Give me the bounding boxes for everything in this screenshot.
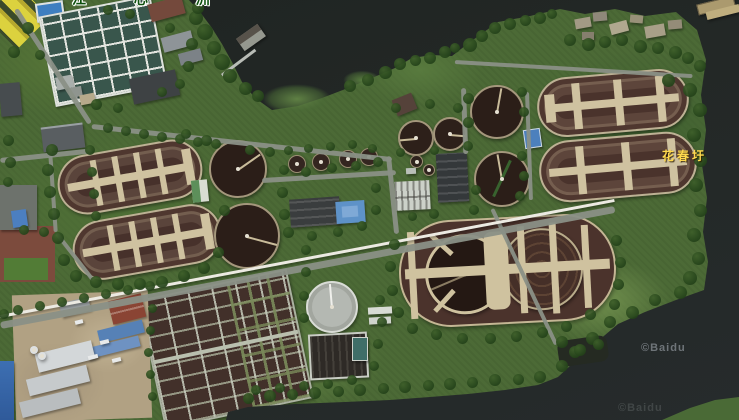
tree-canopy <box>265 147 275 157</box>
tree-canopy <box>634 40 647 53</box>
tree-canopy <box>375 295 385 305</box>
tree-canopy <box>373 339 383 349</box>
tree-canopy <box>626 306 639 319</box>
tree-canopy <box>424 52 436 64</box>
tree-canopy <box>39 227 49 237</box>
tree-canopy <box>333 227 343 237</box>
tree-canopy <box>123 285 133 295</box>
satellite-map-canvas[interactable]: 江 心 洲 花春圩 ©Baidu ©Baidu <box>0 0 739 420</box>
tree-canopy <box>379 66 392 79</box>
tree-canopy <box>214 54 230 70</box>
tree-canopy <box>275 383 285 393</box>
tree-canopy <box>616 34 628 46</box>
tree-canopy <box>251 385 261 395</box>
tree-canopy <box>323 379 333 389</box>
tree-canopy <box>511 331 522 342</box>
tree-canopy <box>239 82 252 95</box>
tree-canopy <box>287 389 298 400</box>
tree-canopy <box>183 61 194 72</box>
tree-canopy <box>429 209 439 219</box>
tree-canopy <box>5 157 16 168</box>
tree-canopy <box>125 9 135 19</box>
tree-canopy <box>85 145 95 155</box>
tree-canopy <box>35 301 45 311</box>
tree-canopy <box>35 50 45 60</box>
tree-canopy <box>599 36 611 48</box>
tree-canopy <box>517 151 527 161</box>
tree-canopy <box>371 183 381 193</box>
tree-canopy <box>471 185 481 195</box>
tree-canopy <box>8 46 20 58</box>
tree-canopy <box>351 161 361 171</box>
tree-canopy <box>519 171 529 181</box>
tree-canopy <box>299 313 309 323</box>
island-place-label: 江 心 洲 <box>72 0 232 9</box>
tree-canopy <box>556 360 568 372</box>
tree-canopy <box>609 299 620 310</box>
tree-canopy <box>371 205 381 215</box>
tree-canopy <box>504 18 516 30</box>
tree-canopy <box>393 307 404 318</box>
tree-canopy <box>201 135 212 146</box>
tree-canopy <box>301 245 311 255</box>
tree-canopy <box>354 384 366 396</box>
tree-canopy <box>304 144 313 153</box>
tree-canopy <box>207 41 221 55</box>
tree-canopy <box>534 371 546 383</box>
tree-canopy <box>344 80 356 92</box>
tree-canopy <box>211 139 221 149</box>
tree-canopy <box>407 323 418 334</box>
tree-canopy <box>3 177 13 187</box>
tree-canopy <box>362 74 374 86</box>
tree-canopy <box>373 157 383 167</box>
tree-canopy <box>694 204 707 217</box>
tree-canopy <box>485 333 496 344</box>
tree-canopy <box>682 52 694 64</box>
tree-canopy <box>662 74 675 87</box>
tree-canopy <box>144 348 153 357</box>
tree-canopy <box>197 24 213 40</box>
tree-canopy <box>410 55 421 66</box>
tree-canopy <box>58 254 70 266</box>
tree-canopy <box>463 141 473 151</box>
tree-canopy <box>44 186 56 198</box>
tree-canopy <box>145 281 155 291</box>
tree-canopy <box>46 144 58 156</box>
tree-canopy <box>0 309 9 319</box>
tree-canopy <box>89 189 99 199</box>
tree-canopy <box>556 336 568 348</box>
tree-canopy <box>277 187 288 198</box>
tree-canopy <box>301 167 311 177</box>
tree-canopy <box>547 9 557 19</box>
tree-canopy <box>264 390 276 402</box>
tree-canopy <box>146 326 155 335</box>
tree-canopy <box>252 90 264 102</box>
tree-canopy <box>148 392 157 401</box>
tree-canopy <box>689 178 703 192</box>
tree-canopy <box>19 225 29 235</box>
tree-canopy <box>243 393 254 404</box>
tree-canopy <box>87 167 97 177</box>
tree-canopy <box>394 58 406 70</box>
tree-canopy <box>489 22 501 34</box>
tree-canopy <box>561 321 572 332</box>
tree-canopy <box>327 163 337 173</box>
tree-canopy <box>399 381 411 393</box>
tree-canopy <box>156 276 168 288</box>
tree-canopy <box>326 142 335 151</box>
tree-canopy <box>385 261 396 272</box>
tree-canopy <box>283 227 294 238</box>
tree-canopy <box>3 135 14 146</box>
tree-canopy <box>348 140 357 149</box>
tree-canopy <box>307 231 317 241</box>
tree-canopy <box>687 228 701 242</box>
tree-canopy <box>121 126 131 136</box>
tree-canopy <box>476 30 488 42</box>
tree-canopy <box>694 60 706 72</box>
tree-canopy <box>139 129 149 139</box>
tree-canopy <box>284 146 293 155</box>
tree-canopy <box>457 333 468 344</box>
tree-canopy <box>613 279 624 290</box>
tree-canopy <box>91 211 101 221</box>
tree-canopy <box>430 146 439 155</box>
tree-canopy <box>692 252 705 265</box>
tree-canopy <box>515 191 525 201</box>
village-place-label: 花春圩 <box>662 147 707 164</box>
tree-canopy <box>157 132 167 142</box>
tree-canopy <box>369 361 379 371</box>
tree-canopy <box>42 164 54 176</box>
tree-canopy <box>113 103 123 113</box>
tree-canopy <box>387 285 398 296</box>
tree-canopy <box>357 221 367 231</box>
tree-canopy <box>299 381 309 391</box>
tree-canopy <box>175 79 185 89</box>
tree-canopy <box>52 232 64 244</box>
tree-canopy <box>615 257 626 268</box>
tree-canopy <box>389 239 400 250</box>
tree-canopy <box>245 145 255 155</box>
baidu-watermark: ©Baidu <box>641 342 686 354</box>
tree-canopy <box>377 317 387 327</box>
tree-canopy <box>564 34 576 46</box>
tree-canopy <box>431 329 442 340</box>
tree-canopy <box>453 103 463 113</box>
tree-canopy <box>444 378 456 390</box>
tree-canopy <box>219 205 230 216</box>
tree-canopy <box>463 38 477 52</box>
tree-canopy <box>378 383 389 394</box>
tree-canopy <box>90 276 102 288</box>
tree-canopy <box>391 103 401 113</box>
tree-canopy <box>299 291 309 301</box>
tree-canopy <box>582 38 595 51</box>
tree-canopy <box>450 43 460 53</box>
tree-canopy <box>423 380 434 391</box>
tree-canopy <box>279 209 290 220</box>
tree-canopy <box>70 270 82 282</box>
tree-canopy <box>463 117 474 128</box>
baidu-watermark-faint: ©Baidu <box>618 402 663 414</box>
tree-canopy <box>649 294 661 306</box>
tree-canopy <box>683 83 697 97</box>
tree-canopy <box>574 344 586 356</box>
tree-canopy <box>408 212 417 221</box>
tree-canopy <box>693 103 707 117</box>
tree-canopy <box>396 148 405 157</box>
tree-canopy <box>103 123 113 133</box>
tree-canopy <box>347 375 357 385</box>
tree-canopy <box>611 235 622 246</box>
tree-canopy <box>186 38 198 50</box>
tree-canopy <box>148 304 157 313</box>
tree-canopy <box>48 208 60 220</box>
tree-canopy <box>489 374 501 386</box>
tree-canopy <box>79 293 89 303</box>
tree-canopy <box>309 387 321 399</box>
tree-canopy <box>13 305 23 315</box>
tree-canopy <box>687 128 701 142</box>
tree-canopy <box>519 107 529 117</box>
tree-cover <box>0 0 739 420</box>
tree-canopy <box>585 309 596 320</box>
tree-canopy <box>467 377 478 388</box>
tree-canopy <box>333 386 344 397</box>
tree-canopy <box>425 99 435 109</box>
tree-canopy <box>368 144 377 153</box>
tree-canopy <box>604 316 616 328</box>
tree-canopy <box>674 286 687 299</box>
tree-canopy <box>683 271 697 285</box>
tree-canopy <box>22 22 34 34</box>
tree-canopy <box>593 339 604 350</box>
tree-canopy <box>520 15 531 26</box>
tree-canopy <box>537 327 548 338</box>
tree-canopy <box>101 289 111 299</box>
tree-canopy <box>157 87 167 97</box>
tree-canopy <box>57 297 67 307</box>
tree-canopy <box>91 99 102 110</box>
tree-canopy <box>534 12 546 24</box>
tree-canopy <box>463 93 474 104</box>
tree-canopy <box>223 69 237 83</box>
tree-canopy <box>165 23 175 33</box>
tree-canopy <box>652 42 664 54</box>
tree-canopy <box>513 374 524 385</box>
tree-canopy <box>301 267 311 277</box>
tree-canopy <box>279 165 289 175</box>
tree-canopy <box>181 129 191 139</box>
tree-canopy <box>469 205 479 215</box>
tree-canopy <box>669 46 682 59</box>
tree-canopy <box>146 370 155 379</box>
tree-canopy <box>517 87 527 97</box>
tree-canopy <box>198 262 210 274</box>
tree-canopy <box>213 247 224 258</box>
tree-canopy <box>178 270 190 282</box>
